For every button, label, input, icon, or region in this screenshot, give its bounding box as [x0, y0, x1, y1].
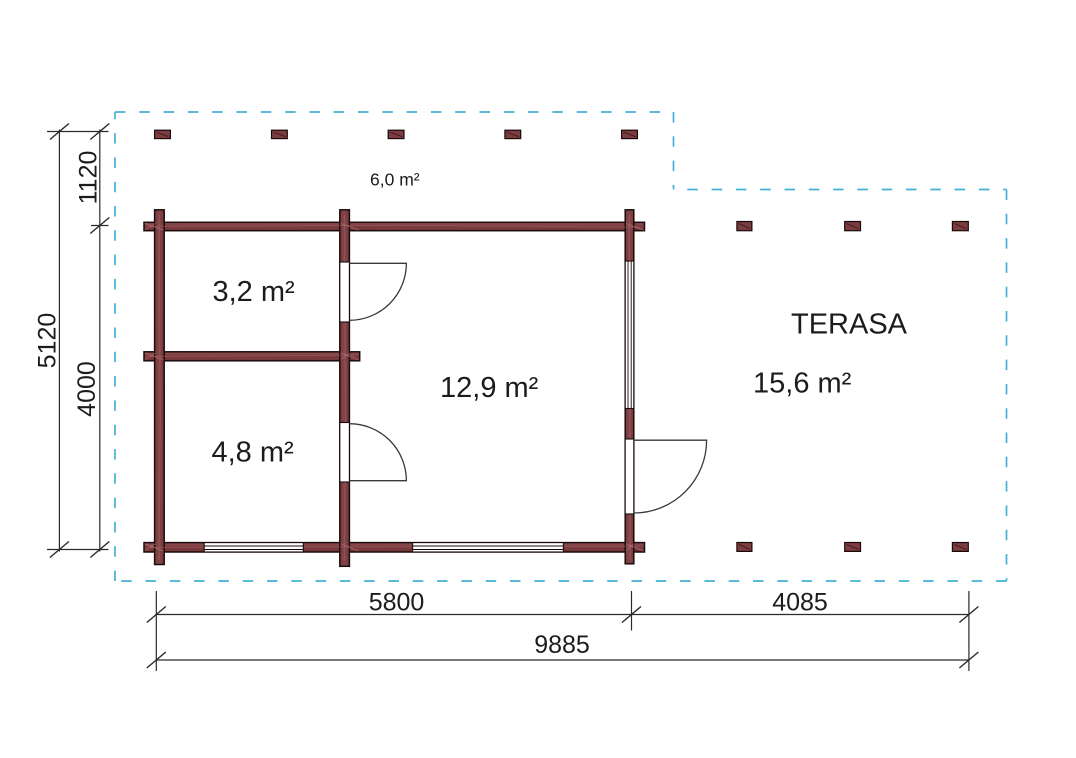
- svg-text:15,6 m²: 15,6 m²: [753, 368, 852, 400]
- svg-text:1120: 1120: [75, 151, 103, 205]
- svg-text:9885: 9885: [534, 631, 590, 659]
- svg-text:6,0 m²: 6,0 m²: [370, 170, 420, 190]
- svg-text:5800: 5800: [369, 589, 425, 617]
- svg-text:4000: 4000: [73, 361, 101, 417]
- svg-text:3,2 m²: 3,2 m²: [213, 276, 296, 308]
- svg-text:4085: 4085: [772, 589, 828, 617]
- svg-text:5120: 5120: [34, 313, 62, 369]
- svg-text:4,8 m²: 4,8 m²: [212, 437, 295, 469]
- svg-text:TERASA: TERASA: [791, 309, 908, 341]
- svg-text:12,9 m²: 12,9 m²: [440, 372, 539, 404]
